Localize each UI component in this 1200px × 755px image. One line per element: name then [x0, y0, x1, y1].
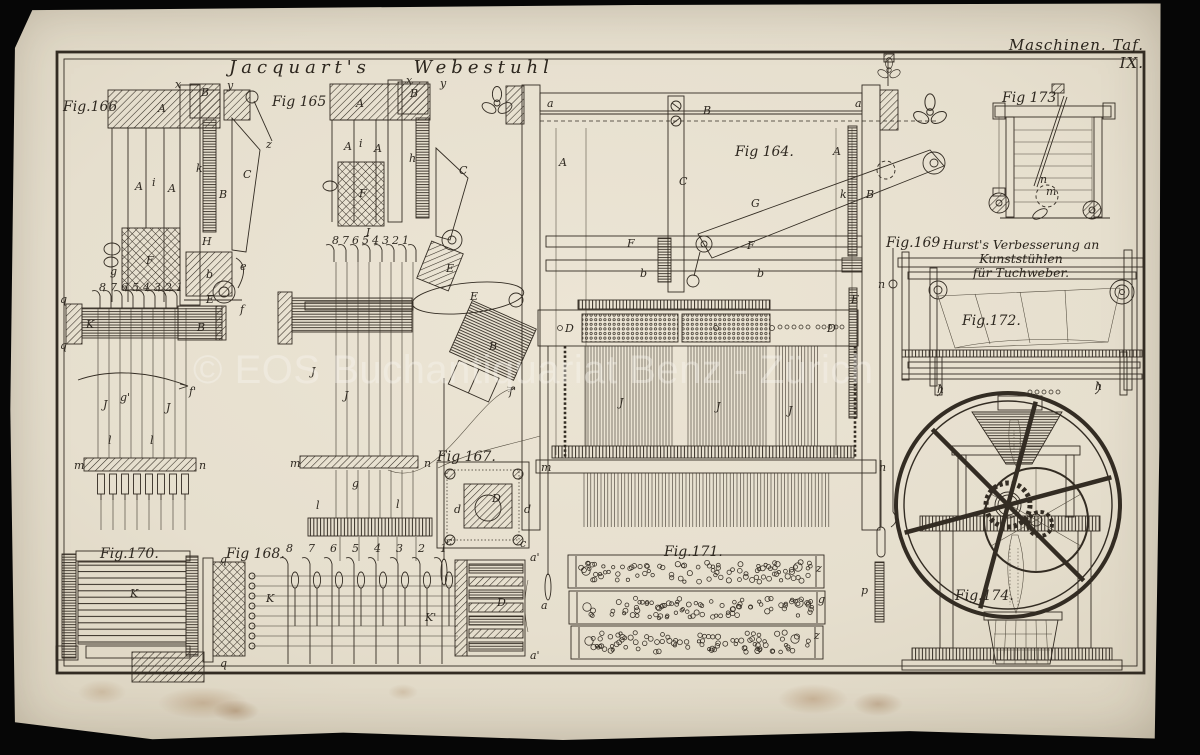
- engraving-letter: b: [757, 267, 764, 280]
- fig165-labels: Fig 165AxByAiAFhCIEEBf'mnJJgll87654321: [271, 74, 516, 512]
- punch-hole: [769, 607, 773, 611]
- punch-hole: [790, 648, 795, 653]
- punch-hole: [720, 603, 724, 607]
- engraving-svg: Fig.166AxByAiAkBCzFgHbeEKBqqff'mnJJg'll8…: [0, 0, 1200, 755]
- punch-hole: [757, 579, 762, 584]
- engraving-letter: m: [290, 457, 300, 470]
- punch-hole: [750, 577, 755, 582]
- punch-hole: [683, 580, 686, 583]
- punch-hole: [765, 596, 770, 601]
- punch-hole: [775, 631, 780, 636]
- engraving-letter: K: [265, 592, 275, 605]
- engraving-letter: b: [206, 268, 213, 281]
- engraving-letter: h: [937, 383, 944, 396]
- punch-hole: [763, 643, 768, 648]
- fig171: Fig.171.zgz: [568, 544, 825, 659]
- punch-hole: [806, 573, 810, 577]
- fig164-lines: [584, 346, 829, 527]
- fig164: Fig 164.aaBAACGFFbbkBEDDJJJmn: [480, 54, 948, 530]
- engraving-letter: 8: [99, 281, 106, 294]
- engraving-letter: A: [157, 102, 166, 115]
- punch-hole: [783, 569, 787, 573]
- fig171-labels: Fig.171.zgz: [663, 544, 825, 642]
- punch-hole: [706, 634, 710, 638]
- punch-hole: [700, 612, 705, 617]
- engraving-letter: 5: [132, 281, 139, 294]
- engraving-letter: 6: [121, 281, 128, 294]
- punch-hole: [616, 572, 620, 576]
- engraving-letter: d: [524, 503, 531, 516]
- punch-hole: [642, 641, 647, 646]
- punch-hole: [634, 605, 638, 609]
- engraving-letter: 1: [402, 234, 409, 247]
- engraving-letter: Fig.174.: [954, 588, 1014, 604]
- punch-hole: [660, 639, 664, 643]
- engraving-letter: Fig.166: [62, 99, 117, 115]
- engraving-letter: 4: [142, 281, 150, 294]
- engraving-letter: g: [818, 593, 825, 606]
- punch-hole: [809, 607, 814, 612]
- punch-hole: [782, 606, 787, 611]
- punch-hole: [707, 577, 711, 581]
- engraving-letter: C: [243, 168, 252, 181]
- punch-hole: [731, 639, 735, 643]
- punch-hole: [796, 614, 799, 617]
- punch-hole: [675, 602, 679, 606]
- engraving-letter: 3: [396, 542, 403, 555]
- punch-hole: [767, 576, 772, 581]
- punch-hole: [715, 634, 720, 639]
- punch-hole: [654, 612, 658, 616]
- punch-hole: [735, 639, 739, 643]
- punch-hole: [799, 578, 804, 583]
- engraving-letter: E: [205, 293, 214, 306]
- punch-hole: [684, 640, 689, 645]
- fig166: Fig.166AxByAiAkBCzFgHbeEKBqqff'mnJJg'll8…: [60, 78, 272, 530]
- punch-hole: [655, 640, 660, 645]
- punch-hole: [630, 613, 635, 618]
- engraving-letter: q: [60, 339, 67, 352]
- engraving-letter: Fig 164.: [734, 144, 794, 160]
- engraving-letter: Fig 173: [1001, 90, 1056, 106]
- engraving-letter: 2: [391, 234, 399, 247]
- punch-hole: [635, 608, 640, 613]
- punch-hole: [737, 568, 742, 573]
- punch-hole: [756, 638, 761, 643]
- punch-hole: [698, 633, 702, 637]
- engraving-letter: q: [220, 657, 227, 670]
- engraving-letter: E: [445, 262, 454, 275]
- engraving-letter: h: [1095, 380, 1102, 393]
- punch-hole: [685, 610, 689, 614]
- punch-hole: [638, 564, 642, 568]
- punch-hole: [749, 605, 753, 609]
- punch-hole: [624, 645, 628, 649]
- punch-hole: [666, 601, 671, 606]
- engraving-letter: n: [424, 457, 431, 470]
- punch-hole: [703, 634, 707, 638]
- engraving-letter: B: [409, 87, 418, 100]
- punch-hole: [711, 568, 715, 572]
- engraving-letter: A: [134, 180, 143, 193]
- engraving-letter: p: [861, 584, 868, 597]
- engraving-letter: K: [85, 318, 95, 331]
- engraving-letter: l: [150, 434, 154, 447]
- punch-hole: [738, 562, 743, 567]
- engraving-letter: 4: [373, 542, 381, 555]
- punch-hole: [739, 638, 744, 643]
- punch-hole: [757, 633, 761, 637]
- punch-hole: [610, 644, 613, 647]
- engraving-letter: B: [702, 104, 711, 117]
- engraving-letter: f': [508, 385, 516, 398]
- punch-hole: [773, 565, 778, 570]
- engraving-letter: A: [167, 182, 176, 195]
- punch-hole: [585, 637, 593, 645]
- punch-hole: [754, 575, 758, 579]
- engraving-letter: n: [879, 461, 886, 474]
- engraving-letter: Fig.170.: [99, 546, 159, 562]
- engraving-letter: J: [101, 398, 108, 411]
- engraving-letter: b: [640, 267, 647, 280]
- punch-hole: [654, 650, 659, 655]
- punch-hole: [707, 564, 711, 568]
- engraving-letter: 7: [308, 542, 315, 555]
- punch-hole: [604, 571, 607, 574]
- punch-hole: [598, 637, 602, 641]
- engraving-letter: 2: [417, 542, 425, 555]
- punch-hole: [625, 603, 629, 607]
- punch-hole: [779, 579, 782, 582]
- engraving-letter: f': [188, 385, 196, 398]
- punch-hole: [740, 598, 744, 602]
- punch-hole: [757, 564, 760, 567]
- punch-hole: [745, 631, 749, 635]
- punch-hole: [611, 565, 614, 568]
- punch-hole: [633, 596, 637, 600]
- punch-hole: [716, 563, 720, 567]
- engraving-letter: y: [226, 79, 234, 92]
- engraving-letter: B: [488, 340, 497, 353]
- engraving-letter: 7: [342, 234, 349, 247]
- engraving-letter: G: [751, 197, 760, 210]
- engraving-letter: 3: [154, 281, 161, 294]
- engraving-letter: J: [714, 400, 721, 413]
- engraving-letter: g: [352, 477, 359, 490]
- punch-hole: [583, 603, 591, 611]
- engraving-letter: Fig 167.: [436, 449, 496, 465]
- engraving-letter: q: [220, 553, 227, 566]
- punch-hole: [791, 576, 796, 581]
- punch-hole: [621, 565, 625, 569]
- punch-hole: [794, 563, 802, 571]
- engraving-letter: B: [200, 86, 209, 99]
- engraving-letter: Fig 168.: [225, 546, 285, 562]
- engraving-letter: a': [530, 649, 540, 662]
- engraving-letter: A: [343, 140, 352, 153]
- punch-hole: [686, 645, 690, 649]
- punch-hole: [726, 613, 731, 618]
- engraving-letter: 5: [352, 542, 359, 555]
- punch-hole: [626, 578, 629, 581]
- engraving-letter: a: [855, 97, 862, 110]
- punch-hole: [697, 579, 702, 584]
- engraving-letter: A: [558, 156, 567, 169]
- punch-hole: [661, 633, 665, 637]
- punch-hole: [648, 615, 651, 618]
- engraving-letter: 6: [330, 542, 337, 555]
- engraving-letter: 3: [382, 234, 389, 247]
- punch-hole: [761, 575, 765, 579]
- punch-hole: [599, 574, 604, 579]
- engraving-letter: A: [355, 97, 364, 110]
- punch-hole: [759, 603, 763, 607]
- punch-hole: [677, 640, 682, 645]
- engraving-letter: J: [309, 365, 316, 378]
- punch-hole: [771, 650, 774, 653]
- engraving-letter: 5: [362, 234, 369, 247]
- engraving-letter: C: [459, 164, 468, 177]
- punch-hole: [608, 634, 613, 639]
- engraving-letter: 1: [440, 542, 447, 555]
- engraving-letter: F: [626, 237, 635, 250]
- engraving-letter: K: [129, 587, 139, 600]
- punch-hole: [716, 641, 721, 646]
- engraving-letter: d: [454, 503, 461, 516]
- engraving-letter: Fig.172.: [961, 313, 1021, 329]
- photo-backdrop: Fig.166AxByAiAkBCzFgHbeEKBqqff'mnJJg'll8…: [0, 0, 1200, 755]
- punch-hole: [635, 614, 639, 618]
- engraving-letter: D: [826, 322, 836, 335]
- engraving-letter: n: [878, 278, 885, 291]
- engraving-letter: A: [832, 145, 841, 158]
- fig164-labels: Fig 164.aaBAACGFFbbkBEDDJJJmn: [541, 97, 886, 474]
- engraving-letter: 7: [110, 281, 117, 294]
- engraving-letter: 6: [352, 234, 359, 247]
- punch-hole: [694, 601, 698, 605]
- fig173: Fig 173nm: [989, 84, 1115, 221]
- hurst-heading: Hurst's Verbesserung an Kunststühlen für…: [908, 238, 1134, 280]
- punch-hole: [670, 576, 674, 580]
- engraving-letter: B: [865, 188, 874, 201]
- engraving-letter: x: [175, 78, 182, 91]
- punch-hole: [719, 614, 723, 618]
- engraving-letter: 8: [332, 234, 339, 247]
- engraving-letter: q: [60, 293, 67, 306]
- hurst-line2: für Tuchweber.: [908, 266, 1134, 280]
- engraving-letter: e: [240, 260, 247, 273]
- engraving-letter: C: [679, 175, 688, 188]
- punch-hole: [735, 613, 740, 618]
- punch-hole: [723, 641, 728, 646]
- engraving-letter: Fig 165: [271, 94, 326, 110]
- punch-hole: [796, 602, 800, 606]
- punch-hole: [775, 561, 780, 566]
- punch-hole: [697, 640, 700, 643]
- engraving-letter: H: [201, 235, 212, 248]
- engraving-letter: J: [164, 401, 171, 414]
- engraving-letter: A: [373, 142, 382, 155]
- punch-hole: [633, 631, 637, 635]
- engraving-letter: a: [547, 97, 554, 110]
- punch-hole: [751, 632, 755, 636]
- engraving-letter: l: [108, 434, 112, 447]
- punch-hole: [711, 565, 714, 568]
- engraving-letter: F: [145, 254, 154, 267]
- engraving-letter: i: [359, 137, 363, 150]
- punch-hole: [734, 642, 737, 645]
- punch-hole: [675, 561, 680, 566]
- punch-hole: [705, 560, 710, 565]
- punch-hole: [640, 600, 644, 604]
- engraving-letter: D: [564, 322, 574, 335]
- punch-hole: [651, 573, 654, 576]
- engraving-letter: m: [74, 459, 84, 472]
- engraving-letter: c: [520, 537, 526, 550]
- punch-hole: [608, 648, 613, 653]
- engraving-letter: a: [541, 599, 548, 612]
- engraving-letter: z: [813, 629, 820, 642]
- punch-hole: [587, 562, 590, 565]
- fig174-labels: Fig.174.: [954, 588, 1014, 604]
- engraving-letter: D: [496, 596, 506, 609]
- punch-hole: [696, 565, 700, 569]
- engraving-letter: B: [196, 321, 205, 334]
- engraving-letter: E: [469, 290, 478, 303]
- punch-hole: [727, 570, 731, 574]
- punch-hole: [628, 635, 633, 640]
- engraving-letter: f: [239, 303, 246, 316]
- punch-hole: [744, 572, 748, 576]
- punch-hole: [643, 571, 648, 576]
- punch-hole: [650, 601, 654, 605]
- punch-hole: [714, 614, 717, 617]
- hurst-line1: Hurst's Verbesserung an Kunststühlen: [908, 238, 1134, 266]
- engraving-letter: F: [358, 187, 367, 200]
- punch-hole: [719, 575, 723, 579]
- engraving-letter: E: [850, 293, 859, 306]
- fig174: Fig.174.: [896, 390, 1122, 670]
- engraving-letter: J: [617, 396, 624, 409]
- engraving-letter: n: [199, 459, 206, 472]
- punch-hole: [633, 640, 638, 645]
- engraving-letter: 2: [164, 281, 172, 294]
- punch-hole: [615, 578, 619, 582]
- punch-hole: [779, 650, 783, 654]
- punch-hole: [726, 578, 731, 583]
- punch-hole: [648, 636, 653, 641]
- punch-hole: [594, 572, 598, 576]
- engraving-letter: g': [120, 391, 130, 404]
- engraving-letter: Fig.171.: [663, 544, 723, 560]
- engraving-letter: k: [840, 188, 847, 201]
- punch-hole: [636, 647, 640, 651]
- punch-hole: [785, 574, 790, 579]
- engraving-letter: D: [491, 492, 501, 505]
- punch-hole: [602, 565, 605, 568]
- engraving-letter: h: [409, 152, 416, 165]
- engraving-letter: 8: [286, 542, 293, 555]
- punch-hole: [600, 631, 604, 635]
- punch-hole: [674, 611, 677, 614]
- punch-hole: [709, 600, 713, 604]
- punch-hole: [687, 570, 692, 575]
- engraving-letter: k: [196, 162, 203, 175]
- punch-hole: [780, 637, 784, 641]
- punch-hole: [616, 599, 621, 604]
- punch-hole: [676, 600, 680, 604]
- engraving-letter: m: [541, 461, 551, 474]
- fig167: Fig 167.Dddcc: [436, 436, 540, 550]
- punch-hole: [700, 639, 704, 643]
- punch-hole: [607, 570, 610, 573]
- engraving-letter: 4: [371, 234, 379, 247]
- engraving-letter: l: [316, 499, 320, 512]
- punch-hole: [733, 600, 737, 604]
- fig168: Fig 168.qqKK'Da'a'a87654321: [203, 542, 548, 670]
- fig171-holes: [579, 560, 814, 654]
- engraving-letter: J: [342, 389, 349, 402]
- plate-header: Maschinen. Taf. IX.: [986, 36, 1144, 72]
- engraving-letter: m: [1046, 185, 1056, 198]
- punch-hole: [806, 644, 810, 648]
- engraving-letter: J: [786, 404, 793, 417]
- punch-hole: [602, 647, 607, 652]
- fig170: Fig.170.K: [56, 546, 204, 682]
- punch-hole: [806, 566, 810, 570]
- punch-hole: [678, 576, 683, 581]
- engraving-letter: 1: [176, 281, 183, 294]
- punch-hole: [647, 569, 650, 572]
- engraving-letter: F: [746, 239, 755, 252]
- engraving-letter: z: [265, 138, 272, 151]
- punch-hole: [738, 578, 742, 582]
- engraving-letter: i: [152, 176, 156, 189]
- engraving-letter: K': [424, 611, 436, 624]
- engraving-letter: l: [396, 498, 400, 511]
- engraving-letter: z: [815, 562, 822, 575]
- punch-hole: [808, 610, 812, 614]
- engraving-letter: y: [439, 77, 447, 90]
- punch-hole: [686, 602, 691, 607]
- punch-hole: [636, 574, 639, 577]
- engraving-letter: a': [530, 551, 540, 564]
- punch-hole: [806, 639, 810, 643]
- plate-title: Jacquart's Webestuhl: [229, 57, 554, 78]
- engraving-letter: g: [110, 265, 117, 278]
- engraving-letter: B: [218, 188, 227, 201]
- punch-hole: [782, 630, 787, 635]
- punch-hole: [694, 610, 699, 615]
- punch-hole: [616, 633, 620, 637]
- punch-hole: [711, 635, 715, 639]
